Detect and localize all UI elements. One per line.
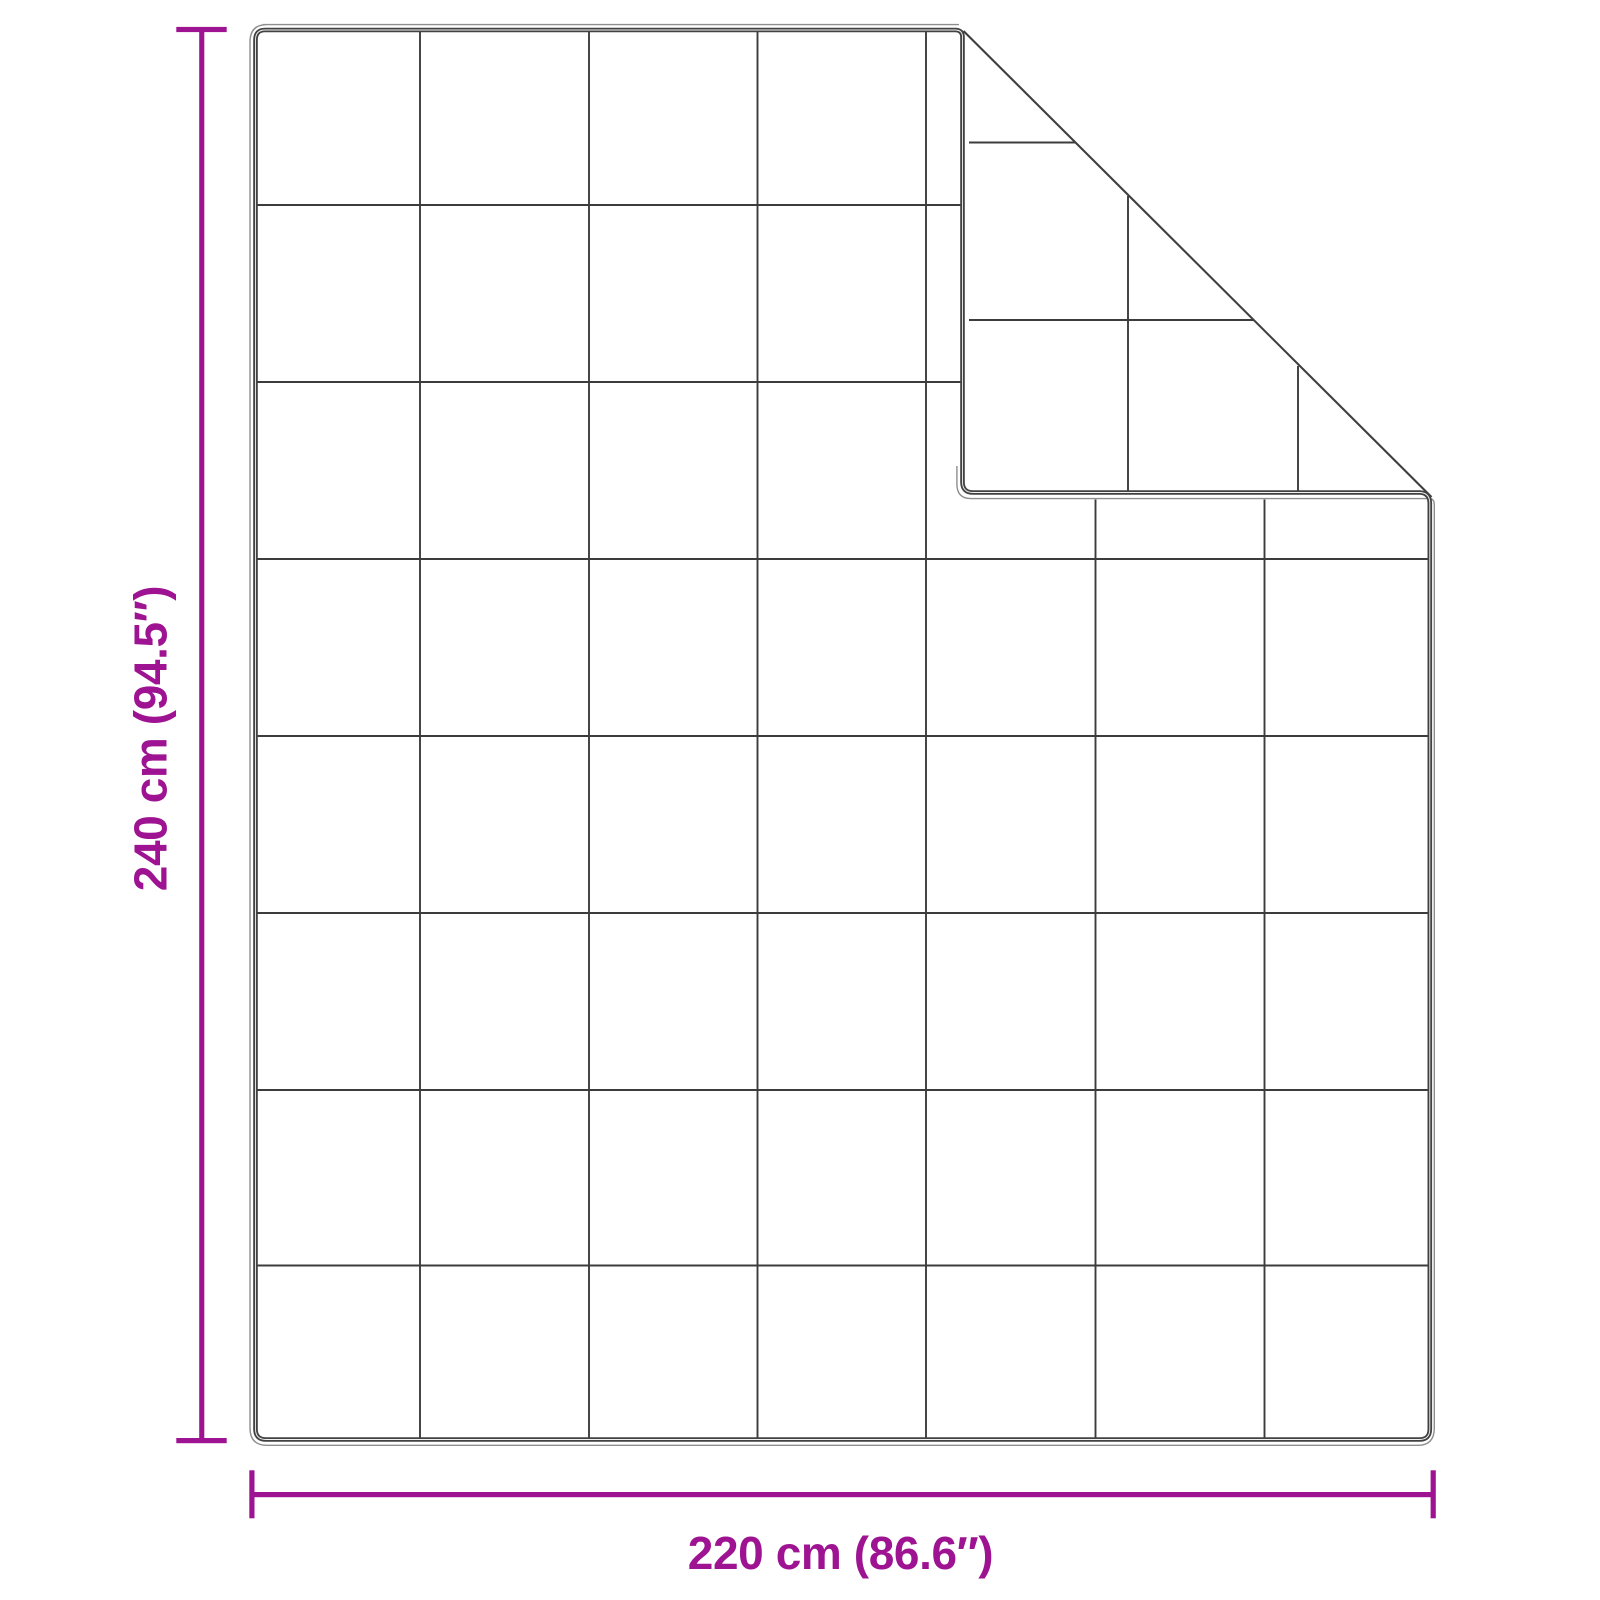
svg-text:240 cm (94.5″): 240 cm (94.5″): [125, 586, 177, 891]
svg-text:220 cm (86.6″): 220 cm (86.6″): [688, 1527, 993, 1579]
